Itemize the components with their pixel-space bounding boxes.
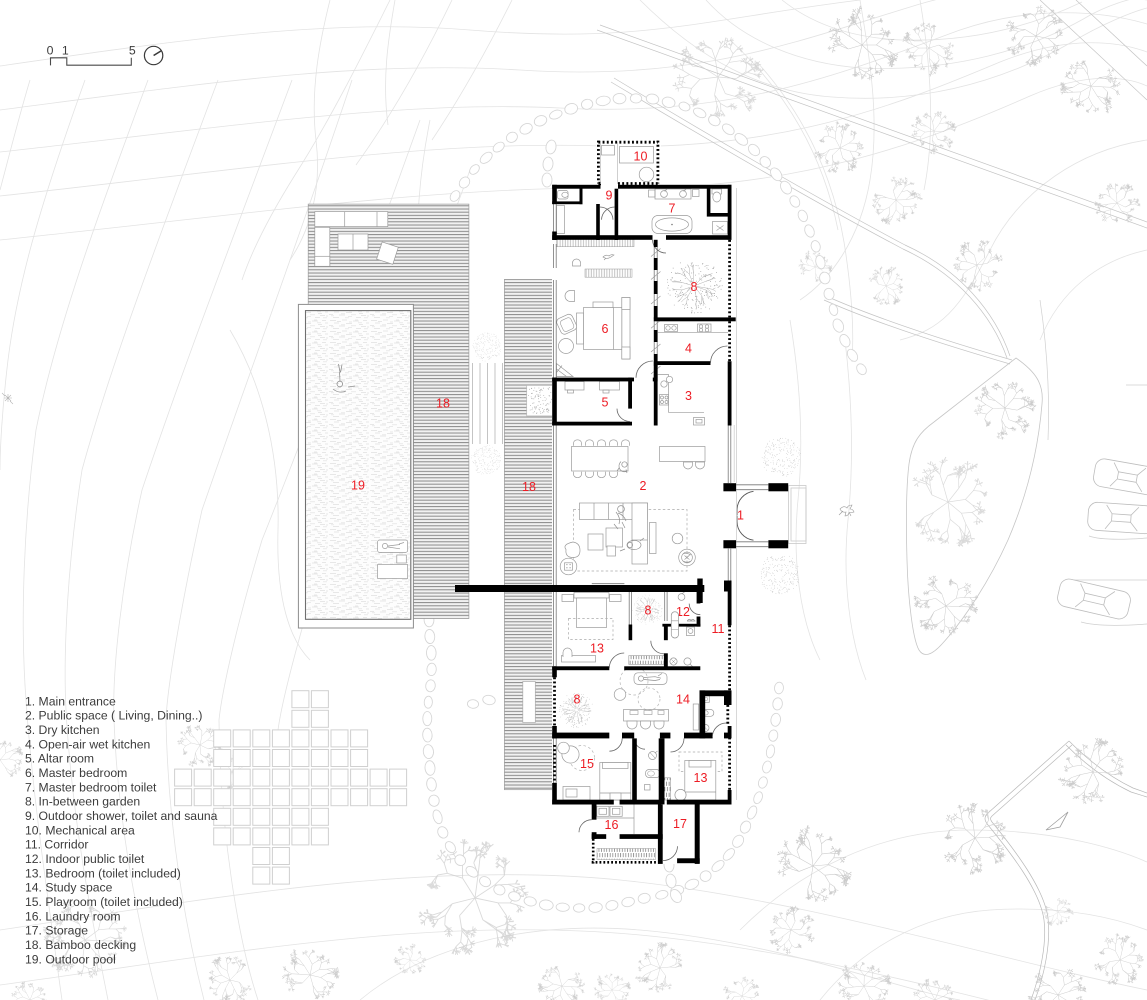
- svg-text:1: 1: [737, 509, 744, 523]
- svg-text:18: 18: [522, 480, 536, 494]
- svg-text:1. Main entrance: 1. Main entrance: [25, 694, 116, 708]
- svg-text:9: 9: [606, 189, 613, 203]
- svg-text:4. Open-air wet kitchen: 4. Open-air wet kitchen: [25, 737, 150, 751]
- svg-text:5. Altar room: 5. Altar room: [25, 752, 94, 766]
- svg-text:15: 15: [580, 757, 594, 771]
- svg-text:10: 10: [634, 150, 648, 164]
- svg-text:2: 2: [640, 479, 647, 493]
- svg-text:5: 5: [602, 396, 609, 410]
- svg-text:6. Master bedroom: 6. Master bedroom: [25, 766, 127, 780]
- svg-text:8: 8: [645, 604, 652, 618]
- svg-text:19. Outdoor pool: 19. Outdoor pool: [25, 952, 116, 966]
- svg-text:17. Storage: 17. Storage: [25, 924, 88, 938]
- svg-text:1: 1: [62, 44, 69, 58]
- svg-text:13: 13: [590, 642, 604, 656]
- svg-text:19: 19: [351, 479, 365, 493]
- svg-text:11. Corridor: 11. Corridor: [25, 838, 88, 852]
- svg-text:7: 7: [669, 202, 676, 216]
- svg-text:13: 13: [694, 771, 708, 785]
- svg-text:12. Indoor public toilet: 12. Indoor public toilet: [25, 852, 145, 866]
- svg-text:8. In-between garden: 8. In-between garden: [25, 795, 140, 809]
- svg-text:10. Mechanical area: 10. Mechanical area: [25, 823, 135, 837]
- svg-text:8: 8: [691, 280, 698, 294]
- svg-text:5: 5: [129, 44, 136, 58]
- svg-text:8: 8: [574, 693, 581, 707]
- svg-text:3: 3: [685, 389, 692, 403]
- svg-text:4: 4: [685, 342, 692, 356]
- svg-text:0: 0: [47, 44, 54, 58]
- svg-text:9. Outdoor shower, toilet and: 9. Outdoor shower, toilet and sauna: [25, 809, 218, 823]
- svg-text:14: 14: [676, 693, 690, 707]
- svg-text:11: 11: [712, 622, 725, 636]
- svg-text:18: 18: [436, 397, 450, 411]
- svg-text:6: 6: [602, 322, 609, 336]
- svg-text:16. Laundry room: 16. Laundry room: [25, 909, 121, 923]
- svg-text:15. Playroom (toilet included): 15. Playroom (toilet included): [25, 895, 183, 909]
- svg-text:3. Dry kitchen: 3. Dry kitchen: [25, 723, 100, 737]
- svg-text:14. Study space: 14. Study space: [25, 881, 113, 895]
- svg-text:16: 16: [605, 818, 619, 832]
- svg-text:7. Master bedroom toilet: 7. Master bedroom toilet: [25, 780, 157, 794]
- svg-text:17: 17: [673, 817, 687, 831]
- svg-text:2. Public space ( Living, Dini: 2. Public space ( Living, Dining..): [25, 709, 202, 723]
- svg-text:18. Bamboo decking: 18. Bamboo decking: [25, 938, 136, 952]
- svg-text:13. Bedroom (toilet included): 13. Bedroom (toilet included): [25, 866, 181, 880]
